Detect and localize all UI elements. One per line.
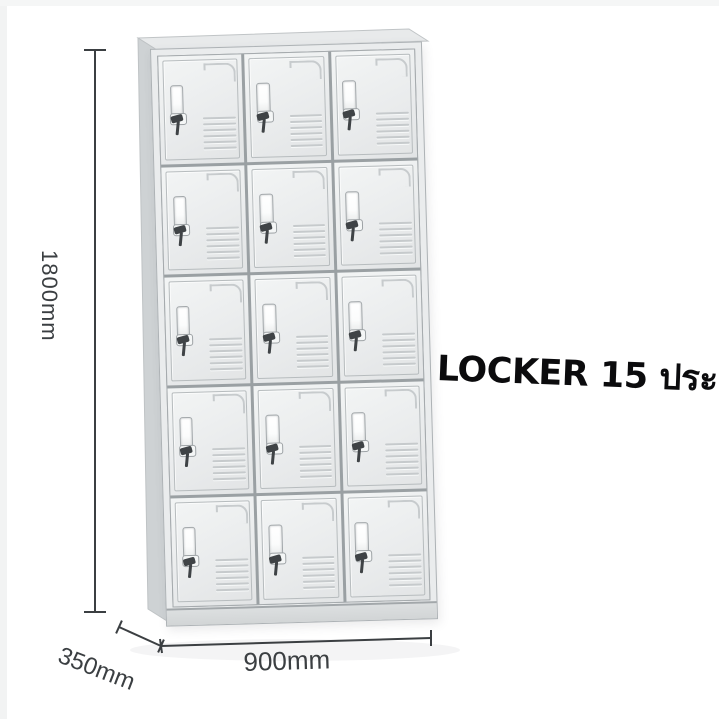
door-vent-curve-icon: [212, 394, 245, 414]
cabinet-front: [150, 41, 438, 626]
door-vent-slats: [376, 111, 409, 144]
locker-door: [334, 160, 420, 270]
locker-door: [254, 384, 340, 494]
door-vent-slats: [388, 554, 421, 587]
door-vent-slats: [213, 448, 246, 481]
door-vent-slats: [296, 335, 329, 368]
door-vent-curve-icon: [299, 391, 332, 411]
door-vent-slats: [382, 332, 415, 365]
door-key-icon: [266, 444, 285, 470]
door-vent-curve-icon: [376, 57, 409, 77]
door-vent-curve-icon: [382, 278, 415, 298]
door-key-icon: [346, 221, 365, 247]
door-vent-curve-icon: [379, 168, 412, 188]
door-vent-curve-icon: [385, 389, 418, 409]
door-vent-curve-icon: [296, 281, 329, 301]
door-vent-slats: [379, 222, 412, 255]
locker-door: [343, 492, 429, 602]
door-key-icon: [183, 557, 202, 583]
door-key-icon: [174, 226, 193, 252]
door-key-icon: [260, 223, 279, 249]
door-vent-slats: [299, 445, 332, 478]
door-key-icon: [171, 115, 190, 141]
locker-door: [331, 50, 417, 160]
door-vent-slats: [290, 114, 323, 147]
locker-doors-grid: [157, 49, 430, 608]
door-vent-slats: [203, 116, 236, 149]
door-key-icon: [180, 447, 199, 473]
height-dimension-line: [84, 50, 106, 612]
door-key-icon: [353, 442, 372, 468]
door-key-icon: [349, 331, 368, 357]
locker-door: [161, 165, 247, 275]
width-dimension-label: 900mm: [243, 644, 331, 678]
door-vent-curve-icon: [388, 499, 421, 519]
door-key-icon: [269, 555, 288, 581]
height-dimension-label: 1800mm: [36, 250, 62, 342]
product-image: 1800mm 350mm 900mm LOCKER 15 ประตู: [0, 0, 719, 719]
door-vent-curve-icon: [209, 283, 242, 303]
door-vent-curve-icon: [206, 173, 239, 193]
locker-door: [244, 52, 330, 162]
locker-door: [340, 381, 426, 491]
door-vent-slats: [209, 337, 242, 370]
door-key-icon: [257, 113, 276, 139]
locker-door: [164, 275, 250, 385]
locker-door: [158, 54, 244, 164]
locker-door: [248, 162, 334, 272]
locker-door: [171, 497, 257, 607]
locker-door: [257, 494, 343, 604]
door-vent-slats: [216, 558, 249, 591]
locker-door: [337, 271, 423, 381]
door-vent-slats: [385, 443, 418, 476]
door-vent-curve-icon: [215, 504, 248, 524]
door-vent-slats: [206, 227, 239, 260]
door-key-icon: [356, 552, 375, 578]
door-vent-slats: [293, 224, 326, 257]
door-vent-curve-icon: [203, 62, 236, 82]
door-key-icon: [263, 334, 282, 360]
door-vent-curve-icon: [292, 170, 325, 190]
locker-door: [167, 386, 253, 496]
door-key-icon: [343, 110, 362, 136]
door-vent-curve-icon: [289, 60, 322, 80]
door-key-icon: [177, 336, 196, 362]
locker-door: [251, 273, 337, 383]
product-title: LOCKER 15 ประตู: [436, 341, 719, 407]
door-vent-slats: [302, 556, 335, 589]
door-vent-curve-icon: [302, 502, 335, 522]
